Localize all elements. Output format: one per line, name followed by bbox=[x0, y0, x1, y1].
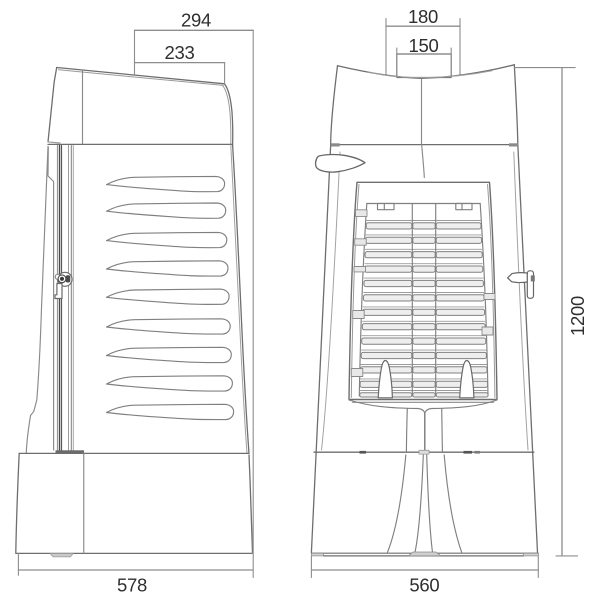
svg-text:578: 578 bbox=[117, 574, 147, 595]
svg-text:150: 150 bbox=[409, 35, 439, 56]
svg-text:560: 560 bbox=[409, 574, 439, 595]
svg-text:233: 233 bbox=[165, 42, 195, 63]
svg-text:1200: 1200 bbox=[567, 296, 588, 336]
svg-text:294: 294 bbox=[181, 9, 211, 30]
svg-text:180: 180 bbox=[408, 6, 438, 27]
